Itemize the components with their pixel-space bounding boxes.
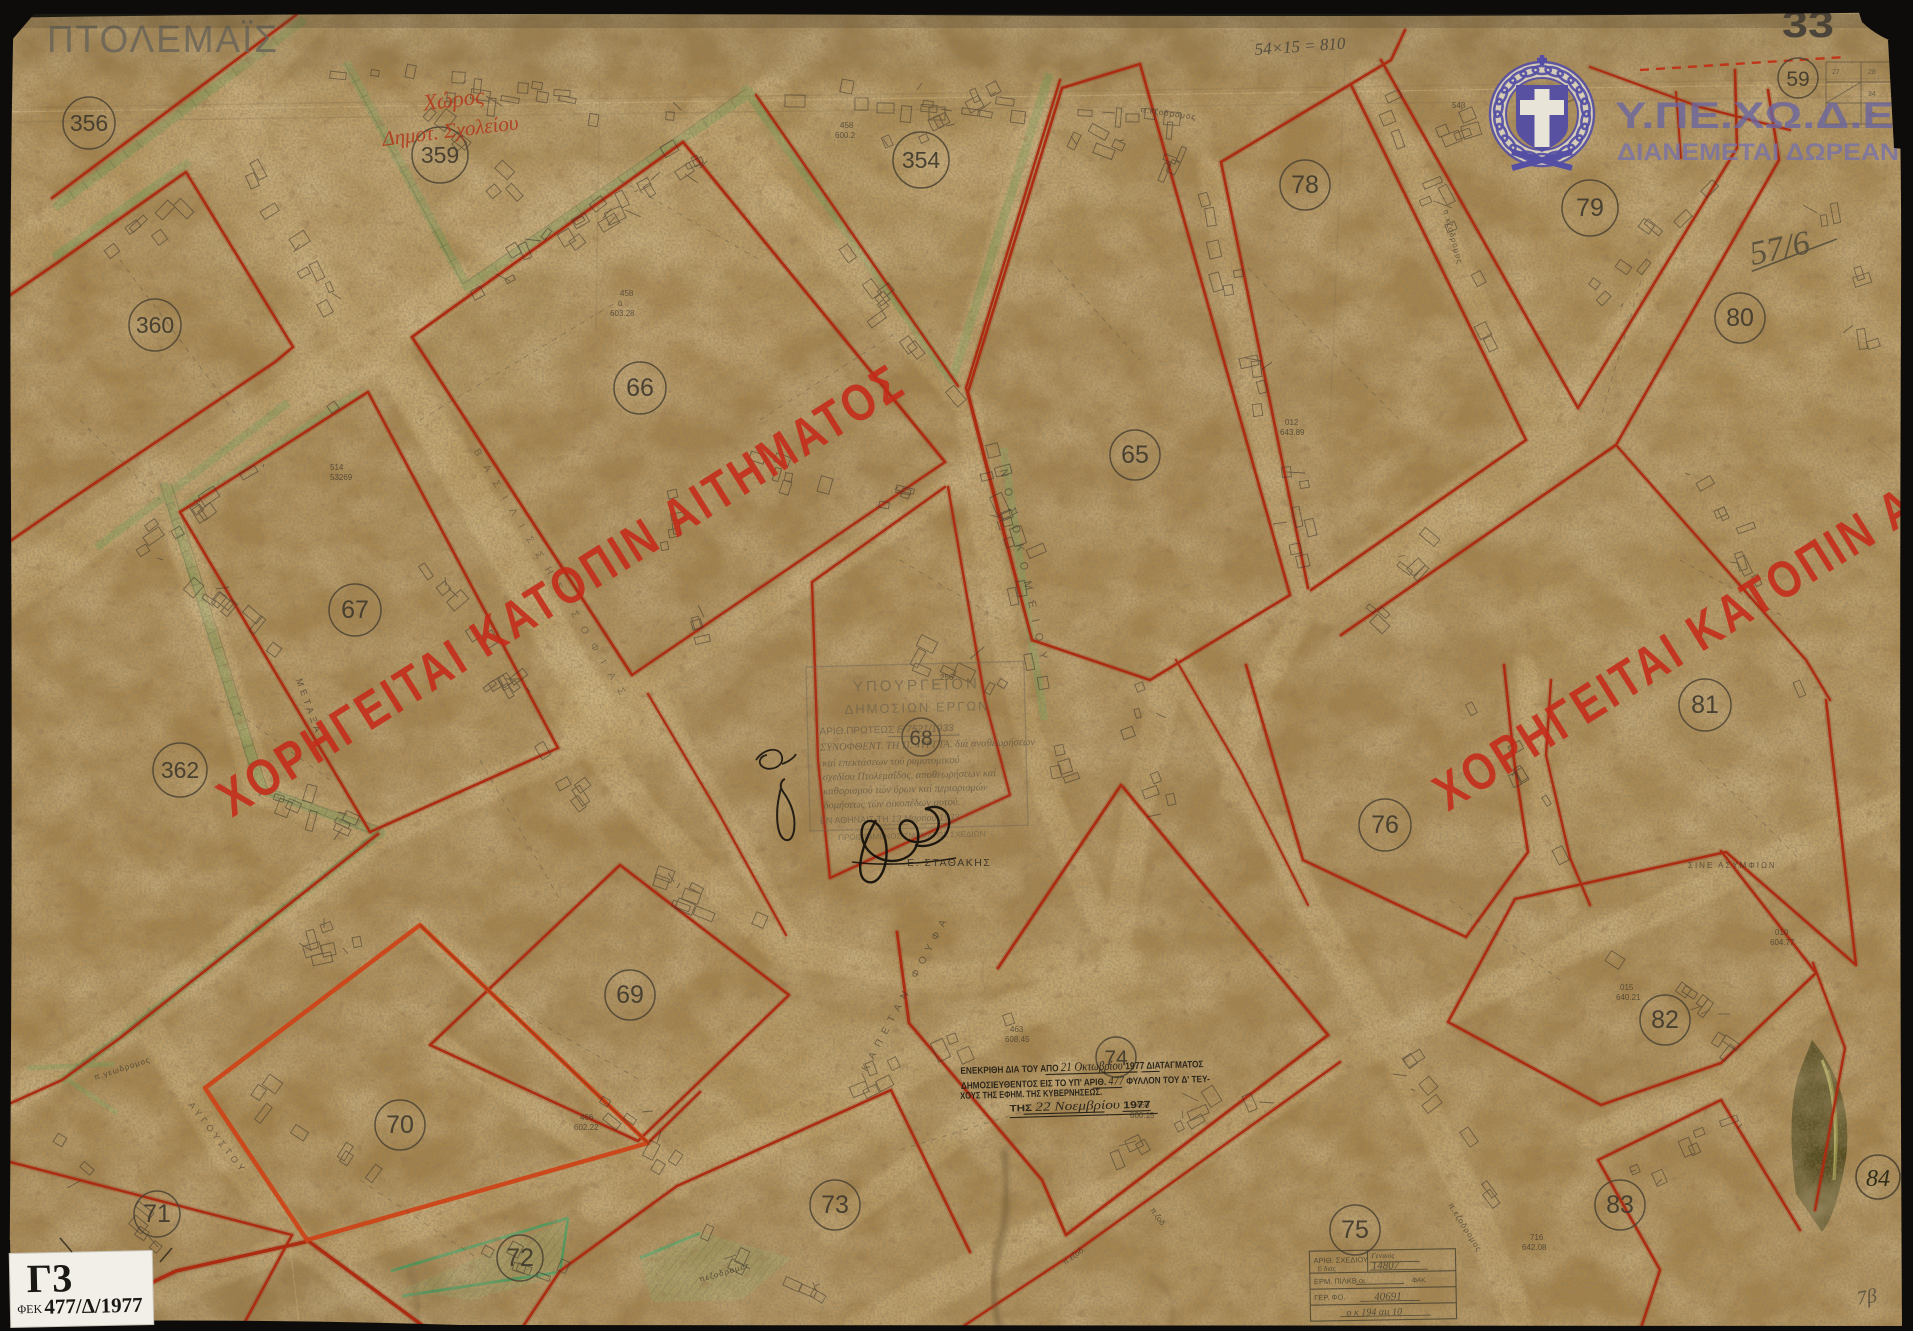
svg-text:79: 79: [1576, 194, 1604, 222]
svg-text:73: 73: [821, 1191, 849, 1219]
svg-text:ΔΙΑΝΕΜΕΤΑΙ ΔΩΡΕΑΝ: ΔΙΑΝΕΜΕΤΑΙ ΔΩΡΕΑΝ: [1617, 139, 1899, 166]
svg-text:603.28: 603.28: [610, 309, 635, 318]
svg-text:53269: 53269: [330, 473, 353, 482]
svg-text:81: 81: [1691, 691, 1719, 719]
svg-text:600.2: 600.2: [835, 131, 856, 140]
svg-text:65: 65: [1121, 441, 1149, 469]
svg-text:66: 66: [626, 374, 654, 402]
svg-text:ΦΕΚ: ΦΕΚ: [17, 1302, 42, 1317]
svg-text:Ε. ΣΤΑΘΑΚΗΣ: Ε. ΣΤΑΘΑΚΗΣ: [907, 857, 991, 869]
svg-text:ΓΕΡ. ΦΟ.: ΓΕΡ. ΦΟ.: [1314, 1293, 1345, 1303]
svg-text:76: 76: [1371, 811, 1399, 839]
svg-text:ΦΑΚ.: ΦΑΚ.: [1412, 1277, 1428, 1284]
svg-text:604.77: 604.77: [1770, 938, 1795, 947]
svg-text:514: 514: [330, 463, 344, 472]
svg-text:458: 458: [620, 289, 634, 298]
svg-text:67: 67: [341, 596, 369, 624]
svg-text:Γενικός: Γενικός: [1370, 1251, 1395, 1260]
svg-text:360: 360: [136, 312, 174, 338]
svg-text:642.08: 642.08: [1522, 1243, 1547, 1252]
svg-text:015: 015: [1620, 983, 1634, 992]
svg-text:602.22: 602.22: [574, 1123, 599, 1132]
svg-text:ο: ο: [618, 299, 623, 308]
svg-text:69: 69: [616, 981, 644, 1009]
svg-text:80: 80: [1726, 304, 1754, 332]
svg-text:7β: 7β: [1855, 1285, 1879, 1310]
svg-text:608.45: 608.45: [1005, 1035, 1030, 1044]
svg-text:Υ.ΠΕ.ΧΩ.Δ.Ε.: Υ.ΠΕ.ΧΩ.Δ.Ε.: [1615, 95, 1907, 136]
svg-text:83: 83: [1606, 1191, 1634, 1219]
svg-text:010: 010: [1775, 928, 1789, 937]
svg-text:354: 354: [902, 147, 941, 173]
svg-text:Ε διάς: Ε διάς: [1318, 1265, 1336, 1273]
svg-text:356: 356: [70, 110, 108, 136]
svg-text:716: 716: [1530, 1233, 1544, 1242]
svg-text:70: 70: [386, 1111, 414, 1139]
svg-text:84: 84: [1866, 1166, 1890, 1192]
svg-text:ΣΙΝΕ ΑΣΥΜΦΙΩΝ: ΣΙΝΕ ΑΣΥΜΦΙΩΝ: [1688, 861, 1777, 870]
svg-text:359: 359: [421, 142, 459, 168]
svg-text:78: 78: [1291, 171, 1319, 199]
svg-text:71: 71: [143, 1200, 171, 1228]
svg-text:600.15: 600.15: [1130, 1111, 1155, 1120]
svg-text:54β: 54β: [1452, 101, 1466, 110]
svg-text:012: 012: [1285, 418, 1299, 427]
svg-text:463: 463: [1010, 1025, 1024, 1034]
svg-text:ΑΡΙΘ. ΣΧΕΔΙΟΥ: ΑΡΙΘ. ΣΧΕΔΙΟΥ: [1313, 1255, 1368, 1265]
svg-text:72: 72: [506, 1244, 534, 1272]
svg-text:75: 75: [1341, 1216, 1369, 1244]
svg-text:59: 59: [1786, 68, 1809, 91]
svg-text:27: 27: [1832, 69, 1840, 76]
svg-text:643.89: 643.89: [1280, 428, 1305, 437]
svg-text:458: 458: [840, 121, 854, 130]
svg-text:477/Δ/1977: 477/Δ/1977: [44, 1293, 143, 1319]
svg-text:640.21: 640.21: [1616, 993, 1641, 1002]
svg-text:362: 362: [161, 757, 199, 783]
svg-text:28: 28: [1868, 69, 1876, 76]
svg-text:ΥΠΟΥΡΓΕΙΟΝ: ΥΠΟΥΡΓΕΙΟΝ: [853, 675, 980, 695]
svg-text:466: 466: [580, 1113, 594, 1122]
svg-text:82: 82: [1651, 1006, 1679, 1034]
